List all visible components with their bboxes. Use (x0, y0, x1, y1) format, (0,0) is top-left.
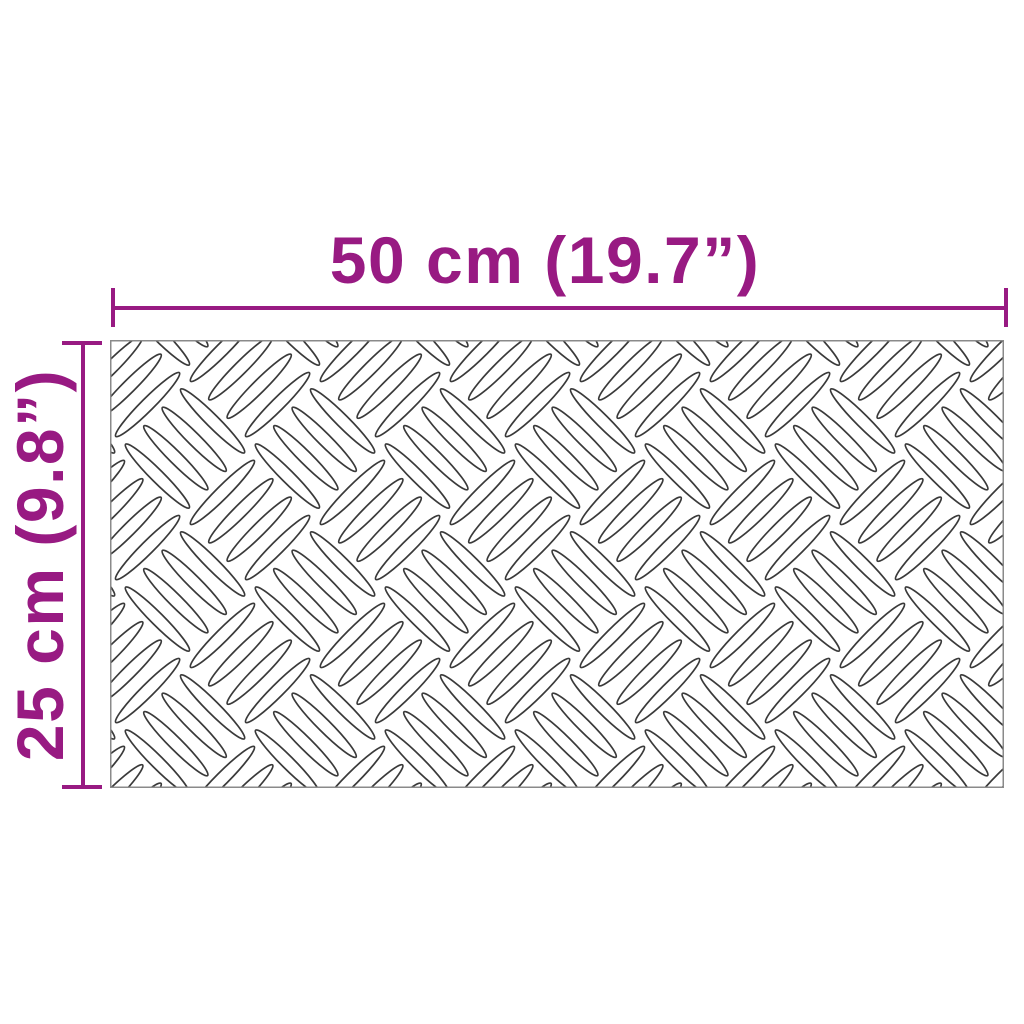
dimension-diagram: 50 cm (19.7”) 25 cm (9.8”) (0, 0, 1024, 1024)
width-dimension-line (113, 306, 1006, 310)
height-dimension-label: 25 cm (9.8”) (7, 369, 73, 761)
width-dimension-cap-right (1004, 288, 1008, 327)
width-dimension-label: 50 cm (19.7”) (100, 227, 990, 293)
width-dimension-cap-left (111, 288, 115, 327)
height-dimension-line (81, 343, 85, 787)
height-dimension-cap-bottom (62, 785, 102, 789)
checker-plate-graphic (110, 340, 1004, 788)
plate-outline (111, 341, 1004, 788)
height-dimension-cap-top (62, 341, 102, 345)
